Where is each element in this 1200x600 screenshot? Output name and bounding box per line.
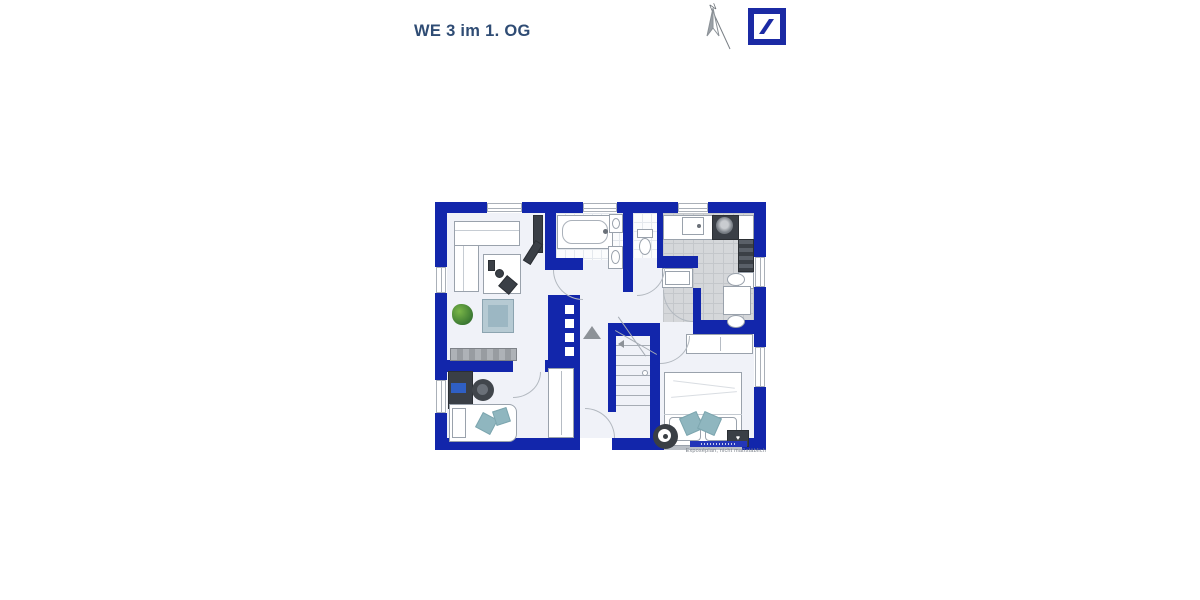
toilet-bowl <box>639 238 651 255</box>
floor-speaker <box>653 424 678 449</box>
chair <box>727 315 745 328</box>
wall-segment <box>545 258 583 270</box>
armchair-seat <box>488 305 508 327</box>
sink-basin <box>612 218 620 229</box>
pillow <box>452 408 466 438</box>
wall-segment <box>623 213 633 292</box>
window <box>487 203 522 212</box>
window <box>755 347 765 387</box>
office-chair <box>472 379 494 401</box>
window <box>755 257 765 287</box>
hall-cabinet-drawer <box>565 333 574 342</box>
plan-caption: Exposéplan, nicht maßstäblich <box>600 448 766 454</box>
faucet <box>697 224 701 228</box>
chair <box>727 273 745 286</box>
kitchen-cabinet <box>738 239 754 272</box>
wall-segment <box>754 287 766 347</box>
north-label: N <box>708 2 718 13</box>
sideboard <box>450 348 517 361</box>
dining-table <box>723 286 751 315</box>
laptop <box>451 383 466 393</box>
wall-segment <box>617 202 678 213</box>
wardrobe <box>686 334 753 354</box>
corner-sofa <box>454 221 520 246</box>
wall-segment <box>435 202 447 267</box>
hall-cabinet <box>548 295 580 363</box>
cooker-hood <box>716 217 733 234</box>
wall-segment <box>693 288 701 322</box>
storage-shelf <box>665 271 690 285</box>
window <box>436 267 446 293</box>
brand-logo-icon <box>748 8 786 45</box>
kitchen-counter <box>663 215 754 240</box>
window <box>583 203 617 212</box>
faucet <box>603 229 608 234</box>
wall-segment <box>608 323 616 412</box>
hall-cabinet-drawer <box>565 347 574 356</box>
bathtub-basin <box>562 220 608 244</box>
hall-cabinet-drawer <box>565 305 574 314</box>
sink-basin <box>611 250 620 264</box>
window <box>436 380 446 413</box>
watermark-strip <box>690 441 747 447</box>
wall-segment <box>522 202 583 213</box>
table-decor <box>495 269 504 278</box>
wardrobe <box>548 368 574 438</box>
stairs-direction-arrow-icon <box>583 326 601 339</box>
floorplan: ♥ <box>435 202 766 450</box>
wall-segment <box>754 202 766 257</box>
hall-cabinet-drawer <box>565 319 574 328</box>
north-arrow-icon: N <box>698 2 740 52</box>
plant <box>452 304 473 325</box>
page: WE 3 im 1. OG N <box>0 0 1200 600</box>
window <box>678 203 708 212</box>
wall-segment <box>435 360 513 372</box>
toilet-tank <box>637 229 653 238</box>
wall-segment <box>657 256 698 268</box>
stair-post <box>642 370 648 376</box>
stair-arrow-icon <box>618 340 624 348</box>
page-title: WE 3 im 1. OG <box>414 22 531 41</box>
table-decor <box>488 260 495 271</box>
